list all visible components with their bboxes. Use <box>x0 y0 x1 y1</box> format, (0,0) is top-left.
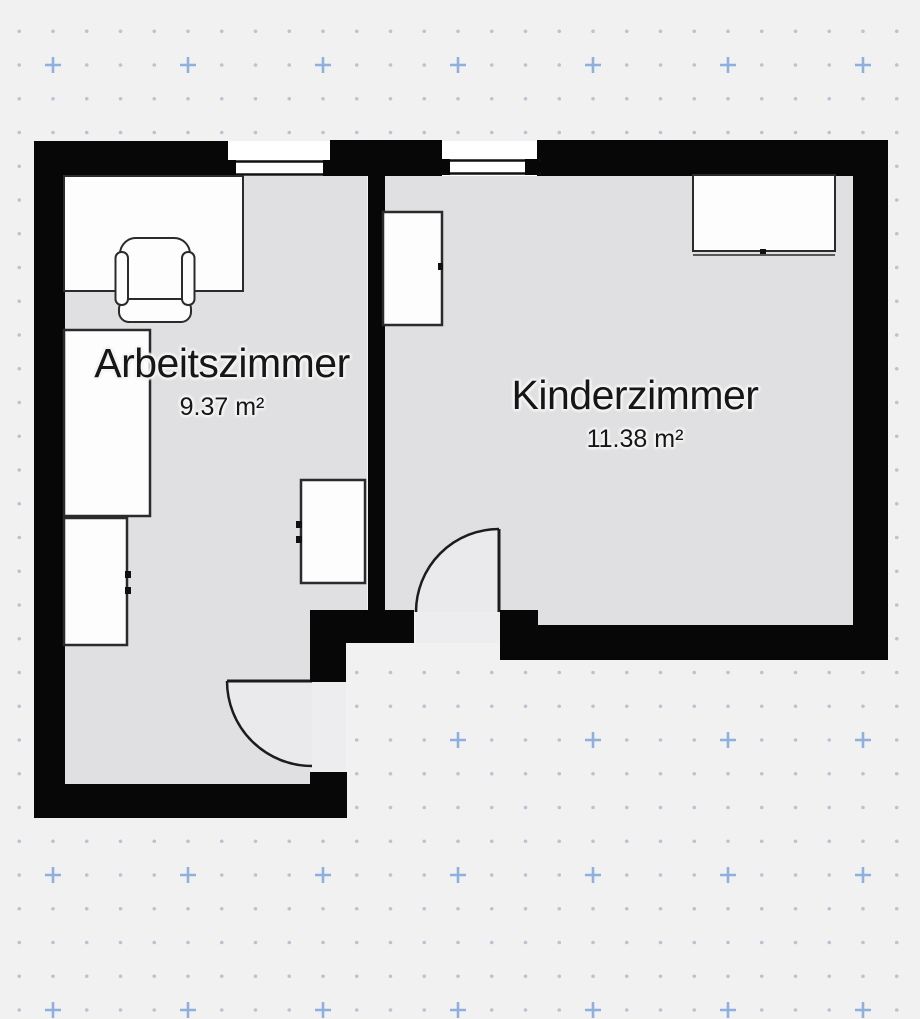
sideboard[interactable] <box>693 175 835 255</box>
wardrobe-handle <box>438 263 443 270</box>
tall-cabinet[interactable] <box>64 330 150 516</box>
door-threshold-kinderzimmer <box>416 612 500 643</box>
window-end-cap <box>525 159 539 175</box>
window-gap <box>228 141 330 176</box>
wall-top-center <box>330 140 442 176</box>
window-arbeitszimmer[interactable] <box>222 141 337 176</box>
sideboard-handle <box>760 249 766 254</box>
cabinet-handle <box>125 587 131 594</box>
wall-step-arbeitszimmer-door <box>310 772 347 785</box>
chair-seat <box>120 238 190 303</box>
cabinet-handle <box>125 571 131 578</box>
window-end-cap <box>436 159 450 175</box>
wall-bottom-kinderzimmer <box>500 625 888 660</box>
wall-top-right <box>537 140 888 176</box>
wall-step-kinderzimmer-door <box>500 610 538 626</box>
wardrobe[interactable] <box>383 212 443 325</box>
wall-stub-arbeitszimmer-door <box>310 610 346 682</box>
wall-right <box>853 140 888 660</box>
dresser-handle <box>296 521 302 528</box>
chair-backrest <box>119 299 191 322</box>
door-threshold-arbeitszimmer <box>310 681 346 772</box>
dresser-handle <box>296 536 302 543</box>
wall-top-left <box>34 141 228 176</box>
window-end-cap <box>323 160 337 176</box>
floor-plan-canvas: Arbeitszimmer 9.37 m² Kinderzimmer 11.38… <box>0 0 920 1019</box>
small-cabinet[interactable] <box>64 518 131 645</box>
window-kinderzimmer[interactable] <box>436 141 541 176</box>
chair-armrest-right <box>182 252 195 305</box>
window-gap <box>442 141 537 176</box>
chair-armrest-left <box>116 252 129 305</box>
window-end-cap <box>222 160 236 176</box>
office-chair[interactable] <box>116 238 195 322</box>
wall-bottom-arbeitszimmer <box>34 784 347 818</box>
wall-left <box>34 143 65 818</box>
floor-plan-drawing <box>0 0 920 1019</box>
dresser[interactable] <box>296 480 365 583</box>
